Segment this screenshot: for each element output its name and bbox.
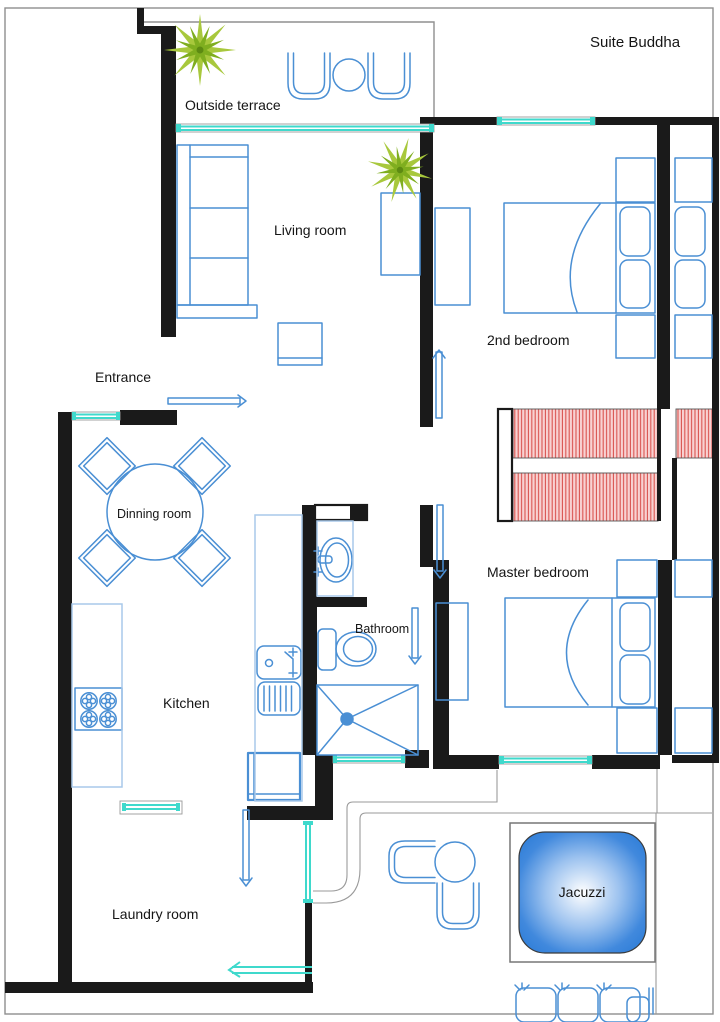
wall-right-outer xyxy=(712,117,719,760)
terrace-chair-left xyxy=(288,53,330,99)
closet-strip-3 xyxy=(676,409,714,458)
kitchen-appliance xyxy=(248,753,300,800)
bed-2nd-bedroom xyxy=(504,203,655,313)
floor-plan-drawing: Suite Buddha Outside terrace Living room… xyxy=(0,0,720,1022)
bed-master xyxy=(505,598,655,707)
sliding-door-laundry-bottom xyxy=(229,962,312,977)
bathroom-vanity xyxy=(317,521,353,596)
shower xyxy=(317,685,418,755)
coffee-table xyxy=(278,323,322,365)
wall-entrance xyxy=(120,410,177,425)
room-label-jacuzzi: Jacuzzi xyxy=(559,884,606,900)
page-title: Suite Buddha xyxy=(590,34,681,51)
room-label-terrace: Outside terrace xyxy=(185,97,281,113)
kitchen-sink xyxy=(257,646,301,715)
shower-drain xyxy=(341,713,353,725)
wall-bedroom2-left xyxy=(420,125,433,427)
room-label-master: Master bedroom xyxy=(487,564,589,580)
room-label-kitchen: Kitchen xyxy=(163,695,210,711)
wall-laundry-bottom xyxy=(5,982,313,993)
wall-bathroom-pillar xyxy=(350,506,367,520)
room-label-entrance: Entrance xyxy=(95,369,151,385)
bathroom-sink xyxy=(314,538,352,582)
pillow xyxy=(620,655,650,704)
wall-bathroom-left xyxy=(302,505,317,755)
kitchen-counter-right xyxy=(255,515,302,801)
window-master-bottom xyxy=(499,756,592,764)
dining-chair xyxy=(79,530,136,587)
window-shower xyxy=(333,755,405,763)
pillow xyxy=(620,260,650,308)
window-entrance xyxy=(72,412,120,420)
nightstand xyxy=(616,158,655,202)
window-bedroom2-top xyxy=(497,117,595,125)
nightstand xyxy=(616,315,655,358)
loungers xyxy=(515,983,653,1022)
room-label-bedroom2: 2nd bedroom xyxy=(487,332,570,348)
closet-strip-1 xyxy=(513,409,658,458)
wall-between-bedrooms xyxy=(657,125,670,409)
patio-chair-bottom xyxy=(437,883,479,929)
wall-master-right xyxy=(658,560,672,755)
room-label-living: Living room xyxy=(274,222,346,238)
door-indicator-bathroom xyxy=(409,608,421,664)
dresser-2nd-bedroom xyxy=(435,208,470,305)
patio-chair-left xyxy=(389,841,435,883)
door-indicator-entrance xyxy=(168,395,246,407)
tv-stand xyxy=(381,193,420,275)
wall-living-left xyxy=(161,26,176,337)
terrace-chair-right xyxy=(368,53,410,99)
closet-strip-2 xyxy=(513,473,658,521)
window-laundry-right xyxy=(303,821,313,903)
patio-table xyxy=(435,842,475,882)
pillow xyxy=(620,603,650,651)
nightstand xyxy=(617,708,657,753)
window-laundry-top xyxy=(120,801,182,814)
wall-kitchen-left xyxy=(58,412,72,992)
closet-hatch-strips xyxy=(498,409,714,521)
closet-end-cap xyxy=(498,409,512,521)
room-label-laundry: Laundry room xyxy=(112,906,198,922)
terrace-table xyxy=(333,59,365,91)
dining-chair xyxy=(79,438,136,495)
window-living-terrace xyxy=(176,124,434,132)
nightstand xyxy=(617,560,657,597)
plant-icon xyxy=(164,14,236,86)
room-label-dining: Dinning room xyxy=(117,507,191,521)
door-indicator-laundry xyxy=(240,810,252,886)
room-label-bathroom: Bathroom xyxy=(355,622,409,636)
dining-chair xyxy=(174,438,231,495)
dining-chair xyxy=(174,530,231,587)
floor-plan-page: Suite Buddha Outside terrace Living room… xyxy=(0,0,720,1022)
door-indicator-bedroom2 xyxy=(433,350,445,418)
sofa xyxy=(177,145,257,318)
pillow xyxy=(620,207,650,256)
stove xyxy=(75,688,122,730)
